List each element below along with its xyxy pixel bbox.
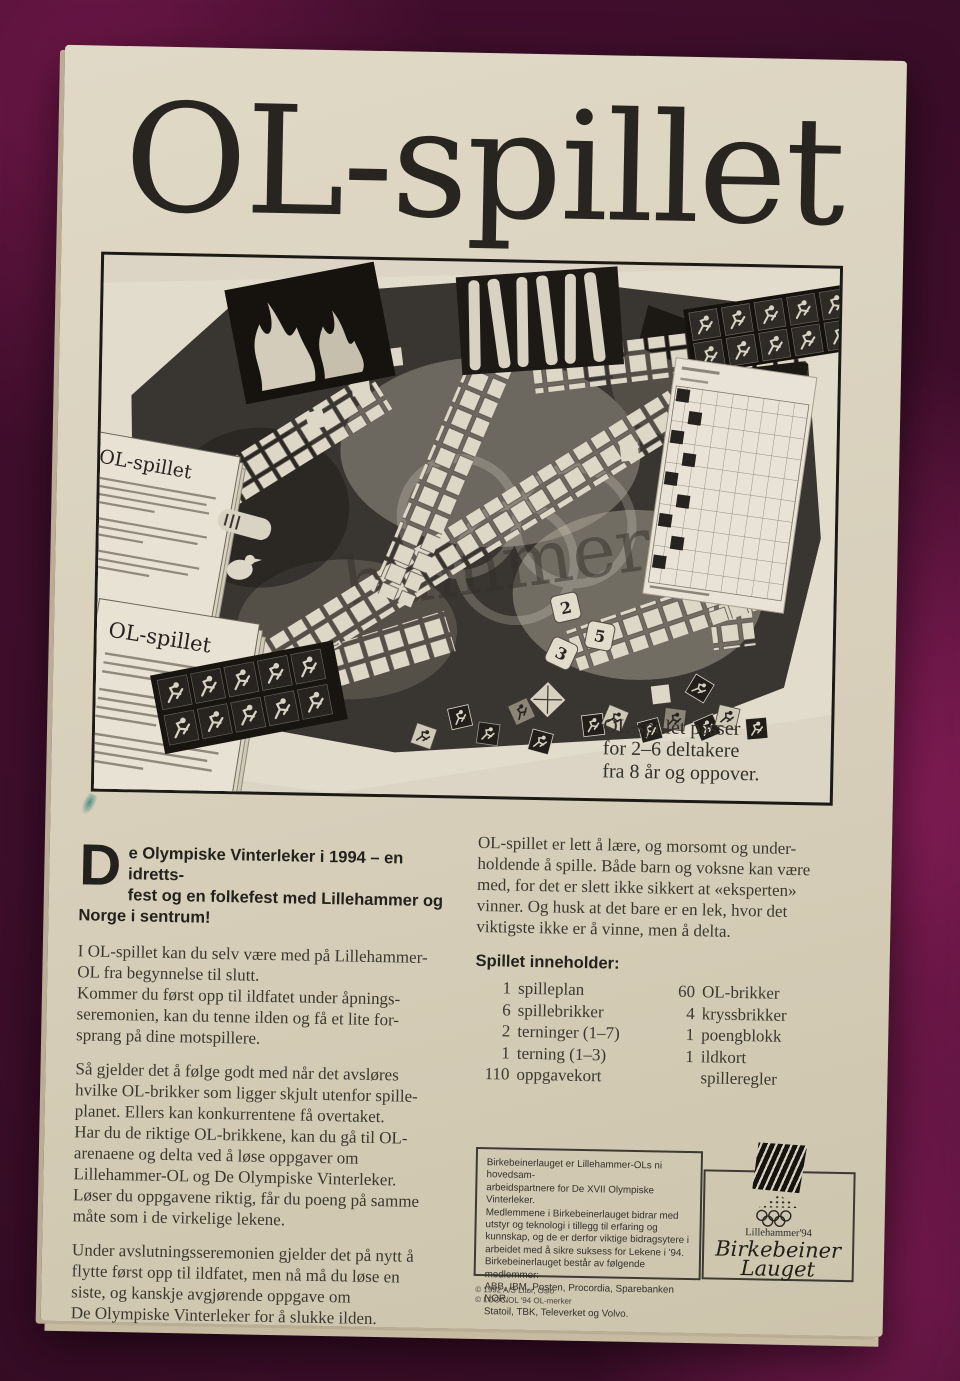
game-box-back: OL-spillet	[41, 45, 907, 1337]
list-item: 110oppgavekort	[473, 1063, 669, 1088]
zebra-curtain	[456, 266, 624, 375]
list-item: spilleregler	[669, 1067, 849, 1092]
emblem-dots-icon	[750, 1194, 808, 1208]
copyright-lines: © 1992 A/S Litor, Oslo © LOOC/OL '94 OL-…	[475, 1285, 572, 1307]
players-age-caption: OL-spillet passer for 2–6 deltakere fra …	[602, 715, 811, 786]
contents-column-2: 60OL-brikker 4kryssbrikker 1poengblokk 1…	[669, 981, 851, 1092]
birkebeinerlauget-logo-box: Lillehammer'94 Birkebeiner Lauget	[702, 1169, 856, 1282]
sponsor-info-box: Birkebeinerlauget er Lillehammer-OLs ni …	[474, 1147, 703, 1280]
lillehammer94-emblem-icon	[752, 1142, 807, 1193]
contents-column-1: 1spilleplan 6spillebrikker 2terninger (1…	[473, 977, 671, 1088]
game-title: OL-spillet	[62, 83, 907, 249]
paragraph-gameplay-middle: Så gjelder det å følge godt med når det …	[72, 1058, 453, 1233]
right-column: OL-spillet er lett å lære, og morsomt og…	[473, 832, 860, 1092]
intro-text: e Olympiske Vinterleker i 1994 – en idre…	[78, 844, 443, 927]
intro-dropcap: D	[79, 842, 129, 887]
paragraph-easy-to-learn: OL-spillet er lett å lære, og morsomt og…	[476, 832, 860, 944]
photo-of-game-box-on-fabric: OL-spillet	[0, 0, 960, 1381]
left-column: De Olympiske Vinterleker i 1994 – en idr…	[70, 821, 458, 1343]
copyright-line-2: © LOOC/OL '94 OL-merker	[475, 1295, 572, 1307]
board-photo-frame: hammer'94	[91, 252, 843, 806]
paragraph-gameplay-start: I OL-spillet kan du selv være med på Lil…	[76, 940, 456, 1052]
paragraph-gameplay-end: Under avslutningsseremonien gjelder det …	[71, 1239, 451, 1330]
ink-smudge	[78, 792, 98, 817]
back-text-block: De Olympiske Vinterleker i 1994 – en idr…	[80, 821, 858, 836]
contents-heading: Spillet inneholder:	[475, 951, 857, 979]
intro-heading: De Olympiske Vinterleker i 1994 – en idr…	[78, 821, 458, 933]
contents-list: 1spilleplan 6spillebrikker 2terninger (1…	[473, 977, 857, 1092]
birkebeiner-lauget-name: Birkebeiner Lauget	[704, 1239, 853, 1280]
